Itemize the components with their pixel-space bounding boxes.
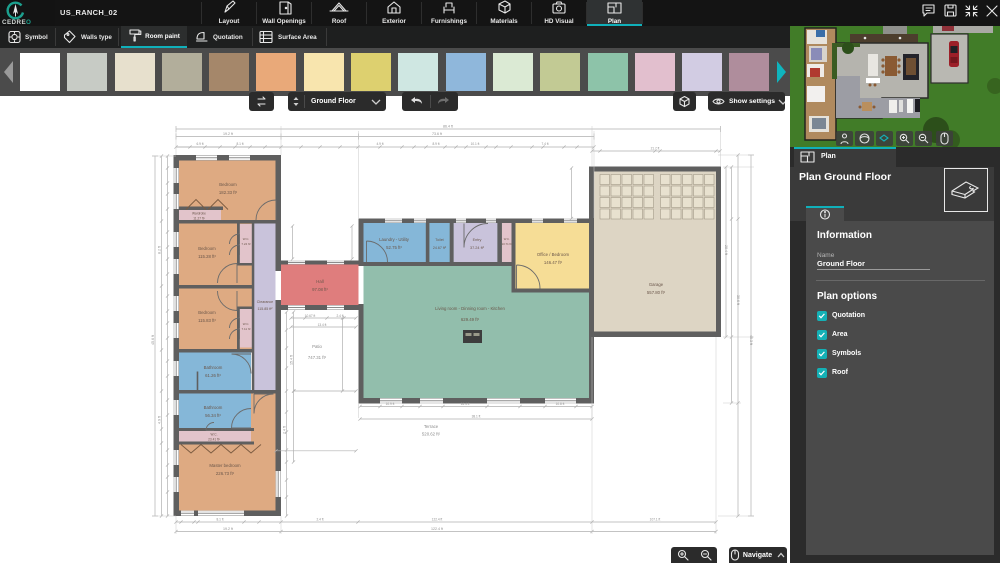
svg-text:15.4 ft: 15.4 ft bbox=[290, 355, 294, 365]
svg-text:61.26 ft²: 61.26 ft² bbox=[205, 373, 221, 378]
svg-text:10.67 ft: 10.67 ft bbox=[305, 314, 316, 318]
svg-text:7.24 ft²: 7.24 ft² bbox=[241, 242, 250, 246]
svg-text:2.4 ft: 2.4 ft bbox=[316, 518, 323, 522]
svg-text:Bedroom: Bedroom bbox=[198, 246, 216, 251]
svg-text:86.4 ft: 86.4 ft bbox=[443, 125, 453, 129]
svg-text:Bathroom: Bathroom bbox=[204, 405, 223, 410]
svg-text:520.62 ft²: 520.62 ft² bbox=[422, 432, 441, 437]
svg-text:Bedroom: Bedroom bbox=[198, 310, 216, 315]
svg-text:Terrace: Terrace bbox=[424, 424, 439, 429]
svg-text:W.C.: W.C. bbox=[243, 237, 250, 241]
svg-text:Hall: Hall bbox=[316, 279, 323, 284]
svg-text:4.9 ft: 4.9 ft bbox=[158, 416, 162, 424]
svg-text:CEDREO: CEDREO bbox=[2, 19, 31, 26]
svg-text:13.4 ft: 13.4 ft bbox=[318, 323, 327, 327]
svg-text:Wardrobe: Wardrobe bbox=[192, 212, 206, 216]
svg-text:W.C.: W.C. bbox=[211, 433, 218, 437]
svg-text:8.2 ft: 8.2 ft bbox=[158, 246, 162, 254]
svg-text:115.85 ft²: 115.85 ft² bbox=[258, 307, 274, 311]
svg-text:182.33 ft²: 182.33 ft² bbox=[219, 190, 238, 195]
svg-text:122.4 ft: 122.4 ft bbox=[431, 527, 443, 531]
svg-text:Clearance: Clearance bbox=[257, 300, 273, 304]
svg-text:Office / Bedroom: Office / Bedroom bbox=[537, 252, 570, 257]
svg-text:115.83 ft²: 115.83 ft² bbox=[198, 318, 216, 323]
svg-text:10.8 ft: 10.8 ft bbox=[556, 402, 565, 406]
svg-text:10.9 ft: 10.9 ft bbox=[386, 402, 395, 406]
svg-text:Master bedroom: Master bedroom bbox=[209, 463, 241, 468]
svg-text:52.75 ft²: 52.75 ft² bbox=[386, 245, 402, 250]
svg-text:146.47 ft²: 146.47 ft² bbox=[544, 260, 563, 265]
svg-text:Living room - Dinning room - K: Living room - Dinning room - Kitchen bbox=[435, 306, 505, 311]
svg-text:Garage: Garage bbox=[649, 282, 664, 287]
svg-text:Toilet: Toilet bbox=[435, 238, 443, 242]
svg-text:73.6 ft: 73.6 ft bbox=[432, 132, 442, 136]
svg-text:Laundry - Utility: Laundry - Utility bbox=[379, 237, 410, 242]
svg-text:37.24 ft²: 37.24 ft² bbox=[470, 246, 485, 250]
svg-text:21.7 ft: 21.7 ft bbox=[651, 146, 660, 150]
svg-text:10.71 ft²: 10.71 ft² bbox=[502, 242, 512, 246]
svg-text:2.4 ft: 2.4 ft bbox=[283, 426, 287, 434]
svg-text:629.49 ft²: 629.49 ft² bbox=[461, 317, 480, 322]
svg-text:8.1 ft: 8.1 ft bbox=[216, 518, 223, 522]
svg-text:6.9 ft: 6.9 ft bbox=[196, 142, 203, 146]
svg-text:Patio: Patio bbox=[312, 344, 322, 349]
svg-text:24.67 ft²: 24.67 ft² bbox=[433, 246, 447, 250]
svg-text:28.4 ft: 28.4 ft bbox=[724, 245, 728, 255]
svg-text:W.C.: W.C. bbox=[504, 237, 510, 241]
svg-text:Bedroom: Bedroom bbox=[219, 182, 237, 187]
svg-text:38.1 ft: 38.1 ft bbox=[472, 415, 481, 419]
svg-text:747.31 ft²: 747.31 ft² bbox=[308, 355, 327, 360]
svg-text:Entry: Entry bbox=[473, 238, 482, 242]
svg-text:Bathroom: Bathroom bbox=[204, 365, 223, 370]
svg-text:16.4 ft: 16.4 ft bbox=[461, 402, 470, 406]
svg-text:19.2 ft: 19.2 ft bbox=[223, 132, 233, 136]
svg-text:557.80 ft²: 557.80 ft² bbox=[647, 290, 666, 295]
svg-text:W.C.: W.C. bbox=[243, 322, 250, 326]
svg-text:4.9 ft: 4.9 ft bbox=[376, 142, 383, 146]
svg-text:97.08 ft²: 97.08 ft² bbox=[312, 287, 328, 292]
svg-text:115.28 ft²: 115.28 ft² bbox=[198, 254, 216, 259]
svg-text:107.1 ft: 107.1 ft bbox=[650, 518, 661, 522]
svg-text:8.9 ft: 8.9 ft bbox=[432, 142, 439, 146]
svg-text:10.1 ft: 10.1 ft bbox=[471, 142, 480, 146]
svg-text:122.4 ft: 122.4 ft bbox=[432, 518, 443, 522]
svg-text:23.41 ft²: 23.41 ft² bbox=[208, 438, 220, 442]
svg-text:19.2 ft: 19.2 ft bbox=[223, 527, 233, 531]
svg-text:11.27 ft²: 11.27 ft² bbox=[193, 217, 204, 221]
svg-text:45.3 ft: 45.3 ft bbox=[749, 335, 753, 345]
svg-text:226.73 ft²: 226.73 ft² bbox=[216, 471, 235, 476]
svg-text:8.1 ft: 8.1 ft bbox=[236, 142, 243, 146]
svg-text:45.6 ft: 45.6 ft bbox=[151, 335, 155, 345]
svg-text:7.4 ft: 7.4 ft bbox=[541, 142, 548, 146]
svg-text:2.4 ft: 2.4 ft bbox=[336, 314, 343, 318]
svg-text:30.6 ft: 30.6 ft bbox=[736, 295, 740, 305]
svg-text:7.11 ft²: 7.11 ft² bbox=[241, 327, 250, 331]
svg-text:56.34 ft²: 56.34 ft² bbox=[205, 413, 221, 418]
